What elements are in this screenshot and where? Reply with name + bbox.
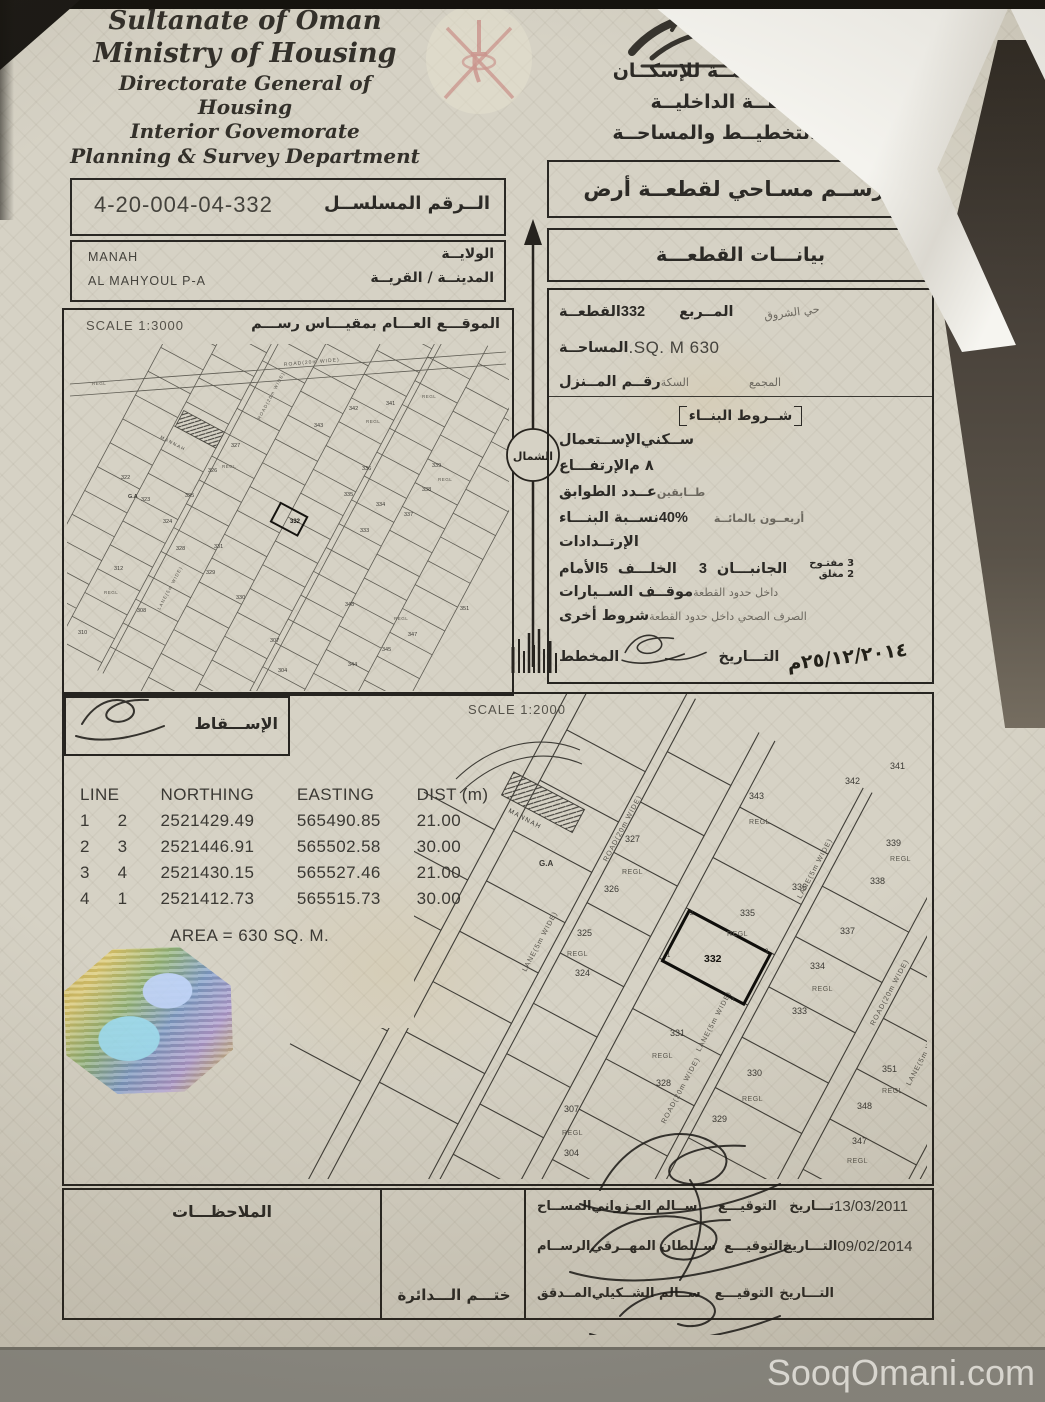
plot-number-label: 348 <box>345 602 354 608</box>
plot-number-label: REGL <box>92 381 106 386</box>
wilayat-value: MANAH <box>88 250 138 264</box>
plot-number-label: 347 <box>408 632 417 638</box>
plot-number-label: 337 <box>840 926 855 936</box>
plot-number-label: 325 <box>577 928 592 938</box>
plot-number-label: 324 <box>575 968 590 978</box>
coords-cell: 30.00 <box>417 886 490 912</box>
village-value: AL MAHYOUL P-A <box>88 274 206 288</box>
use-value: ســكني <box>641 432 694 448</box>
plot-number-label: 351 <box>882 1064 897 1074</box>
use-row: الإســتعمال ســكني <box>549 432 932 448</box>
front-label: الأمام <box>559 561 600 577</box>
plot-number-label: 323 <box>141 497 150 503</box>
planner-row: المخطط التـــاريخ ٢٥/١٢/٢٠١٤م <box>549 642 932 672</box>
photo-top-edge <box>0 0 1045 9</box>
coords-row: 122521429.49565490.8521.00 <box>80 808 490 834</box>
plot-data-header: بيانـــات القطعـــة <box>656 244 825 266</box>
setbacks-row: الإرتــدادات <box>549 534 932 550</box>
coords-cell: 565527.46 <box>297 860 417 886</box>
oman-emblem-icon <box>423 2 535 120</box>
coords-cell: 4 <box>80 886 118 912</box>
setbacks-label: الإرتــدادات <box>559 534 639 550</box>
coords-cell: 30.00 <box>417 834 490 860</box>
complex-label: المجمع <box>749 376 781 389</box>
plot-number-label: 307 <box>270 638 279 644</box>
coords-cell: 565490.85 <box>297 808 417 834</box>
coords-cell: 2521429.49 <box>161 808 297 834</box>
coords-cell: 1 <box>80 808 118 834</box>
plot-number-label: REGL <box>890 856 911 863</box>
sides-label: الجانبـــان <box>717 561 787 577</box>
street-label: LANE(5m WIDE) <box>906 1024 927 1087</box>
wilayat-box: الولايــة المدينــة / القريــة MANAH AL … <box>70 240 506 302</box>
watermark-text: SooqOmani.com <box>767 1352 1035 1394</box>
mannah-hatch-block <box>175 411 224 448</box>
header-line: Ministry of Housing <box>70 38 420 71</box>
plot-number-label: 324 <box>163 519 172 525</box>
area-row: المساحــة 630 SQ. M. <box>549 338 932 358</box>
plot-number-label: 328 <box>656 1078 671 1088</box>
plot-number-label: REGL <box>438 477 452 482</box>
column-divider <box>380 1190 382 1318</box>
coords-header: EASTING <box>297 782 417 808</box>
projection-label: الإســـقاط <box>194 714 278 733</box>
coords-header: NORTHING <box>161 782 297 808</box>
height-value: ٨ م <box>629 458 654 474</box>
district-name: حي الشروق <box>763 302 820 322</box>
plot-number-label: 339 <box>432 463 441 469</box>
building-conditions-header: شــروط البنــاء <box>683 408 799 424</box>
plot-number-label: REGL <box>422 394 436 399</box>
plot-number-label: 334 <box>376 502 385 508</box>
coords-cell: 2521446.91 <box>161 834 297 860</box>
plot-number-label: 335 <box>344 492 353 498</box>
coords-header: DIST (m) <box>417 782 490 808</box>
plot-number-label: 335 <box>740 908 755 918</box>
plot-number-label: REGL <box>622 869 643 876</box>
coords-cell: 3 <box>80 860 118 886</box>
plot-number-label: G.A <box>539 859 553 868</box>
plot-number-label: 310 <box>78 630 87 636</box>
coords-cell: 2521412.73 <box>161 886 297 912</box>
coords-cell: 2521430.15 <box>161 860 297 886</box>
coords-cell: 21.00 <box>417 860 490 886</box>
plot-number-label: REGL <box>749 819 770 826</box>
photo-bottom-strip: SooqOmani.com <box>0 1347 1045 1402</box>
plot-label: القطعــة <box>559 304 621 320</box>
parking-label: موقــف الســيارات <box>559 584 693 600</box>
back-label: الخلـــف <box>618 561 677 577</box>
plot-number-label: 351 <box>460 606 469 612</box>
setback-values-row: الأمام 5 الخلـــف 3 الجانبـــان 3 مفتـوح… <box>549 558 932 580</box>
plot-details-panel: القطعــة 332 المــربع حي الشروق المساحــ… <box>547 288 934 684</box>
plot-number-label: 336 <box>362 466 371 472</box>
area-value: 630 SQ. M. <box>629 338 720 358</box>
plot-number-label: 339 <box>886 838 901 848</box>
coords-cell: 3 <box>118 834 161 860</box>
coords-cell: 565502.58 <box>297 834 417 860</box>
coords-row: 342521430.15565527.4621.00 <box>80 860 490 886</box>
divider <box>549 396 932 397</box>
house-number-label: رقــم المــنزل <box>559 374 661 390</box>
coords-cell: 565515.73 <box>297 886 417 912</box>
other-conditions-row: شروط أخرى الصرف الصحي داخل حدود القطعة <box>549 608 932 624</box>
plot-number-label: 327 <box>625 834 640 844</box>
sides-open-value: 3 مفتـوح <box>809 558 854 569</box>
coords-cell: 2 <box>118 808 161 834</box>
plot-number-label: 308 <box>137 608 146 614</box>
parking-value: داخل حدود القطعة <box>693 586 778 599</box>
plot-number-label: 338 <box>870 876 885 886</box>
building-ratio-value: 40% <box>659 510 688 526</box>
plot-number-label: 331 <box>214 544 223 550</box>
notes-label: الملاحظـــات <box>64 1202 380 1221</box>
street-label: LANE(5m WIDE) <box>797 837 835 900</box>
use-label: الإســتعمال <box>559 432 641 448</box>
plot-number-label: 341 <box>386 401 395 407</box>
plot-number: 332 <box>621 304 645 320</box>
projection-box: الإســـقاط <box>64 696 290 756</box>
planner-signature-icon <box>619 622 712 672</box>
ratio-row: نســبة البنـــاء 40% أربعــون بالمائــة <box>549 510 932 526</box>
plot-number-label: 326 <box>604 884 619 894</box>
plot-number-label: 330 <box>236 595 245 601</box>
planner-date-value: ٢٥/١٢/٢٠١٤م <box>787 639 909 676</box>
street-label: LANE(5m WIDE) <box>156 565 183 610</box>
plot-number-label: 329 <box>206 570 215 576</box>
plot-number-label: REGL <box>812 986 833 993</box>
plot-number-label: 338 <box>422 487 431 493</box>
plot-number-label: 328 <box>176 546 185 552</box>
front-value: 5 <box>600 561 608 577</box>
photo-left-shadow <box>0 0 14 220</box>
coords-cell: 4 <box>118 860 161 886</box>
other-conditions-value: الصرف الصحي داخل حدود القطعة <box>649 610 807 623</box>
plot-data-header-box: بيانـــات القطعـــة <box>547 228 934 282</box>
header-line: Sultanate of Oman <box>70 6 420 38</box>
plot-number-row: القطعــة 332 المــربع حي الشروق <box>549 304 932 320</box>
building-conditions-header-row: شــروط البنــاء <box>549 408 932 424</box>
plot-number-label: 342 <box>349 406 358 412</box>
street-label: LANE(5m WIDE) <box>522 910 560 973</box>
english-header: Sultanate of Oman Ministry of Housing Di… <box>70 6 420 168</box>
plot-number-label: 341 <box>890 761 905 771</box>
detail-map-panel: SCALE 1:2000 343342341REGL336339REGL3383… <box>62 692 934 1186</box>
plot-number-label: 327 <box>231 443 240 449</box>
height-label: الإرتفـــاع <box>559 458 629 474</box>
planner-date-label: التـــاريخ <box>719 649 780 665</box>
height-row: الإرتفـــاع ٨ م <box>549 458 932 474</box>
plot-number-label: 348 <box>857 1101 872 1111</box>
header-line: Planning & Survey Department <box>70 144 420 168</box>
floors-label: عــدد الطوابق <box>559 484 657 500</box>
plot-number-label: 312 <box>114 566 123 572</box>
plot-number-label: 333 <box>792 1006 807 1016</box>
plot-number-label: REGL <box>727 931 748 938</box>
square-label: المــربع <box>679 304 733 320</box>
mannah-hatch-block <box>502 772 585 833</box>
plot-number-label: REGL <box>882 1088 903 1095</box>
coords-cell: 21.00 <box>417 808 490 834</box>
area-label: المساحــة <box>559 340 629 356</box>
serial-label: الــرقم المسلســل <box>324 193 490 214</box>
building-ratio-text: أربعــون بالمائــة <box>714 512 804 525</box>
floors-value: طــابقين <box>657 486 705 499</box>
plot-number-label: 322 <box>121 475 130 481</box>
plot-number-label: 325 <box>185 493 194 499</box>
stamp-label: ختـــم الـــدائرة <box>394 1286 514 1304</box>
serial-value: 4-20-004-04-332 <box>94 192 273 218</box>
plot-number-label: 330 <box>747 1068 762 1078</box>
plot-number-label: 337 <box>404 512 413 518</box>
plot-number-label: 342 <box>845 776 860 786</box>
plot-number-label: 333 <box>360 528 369 534</box>
plot-number-label: 345 <box>382 647 391 653</box>
coords-cell: 2 <box>80 834 118 860</box>
street-label: السكة <box>661 376 689 389</box>
serial-number-box: الــرقم المسلســل 4-20-004-04-332 <box>70 178 506 236</box>
street-label: ROAD(20m WIDE) <box>256 371 285 420</box>
plot-number-label: G.A <box>128 494 138 500</box>
plot-number-label: 334 <box>810 961 825 971</box>
plot-number-label: 307 <box>564 1104 579 1114</box>
coordinates-table: LINENORTHINGEASTINGDIST (m)122521429.495… <box>80 782 490 912</box>
footer-signatures-icon <box>540 1120 870 1335</box>
house-row: رقــم المــنزل السكة المجمع <box>549 374 932 390</box>
header-line: Directorate General of Housing <box>70 71 420 120</box>
plot-number-label: 332 <box>704 953 722 965</box>
sides-closed-value: 2 مغلق <box>809 569 854 580</box>
building-ratio-label: نســبة البنـــاء <box>559 510 659 526</box>
overview-map-panel: SCALE 1:3000 الموقـــع العـــام بمقيـــا… <box>62 308 514 696</box>
plot-number-label: 331 <box>670 1028 685 1038</box>
plot-number-label: REGL <box>567 951 588 958</box>
plot-number-label: REGL <box>366 419 380 424</box>
plot-number-label: REGL <box>394 616 408 621</box>
projection-signature-icon <box>72 684 202 748</box>
plot-number-label: 343 <box>749 791 764 801</box>
back-value: 3 <box>699 561 707 577</box>
plot-number-label: 343 <box>314 423 323 429</box>
document-photo: Sultanate of Oman Ministry of Housing Di… <box>0 0 1045 1402</box>
plot-number-label: 344 <box>348 662 357 668</box>
street-label: ROAD(20m WIDE) <box>603 794 644 863</box>
area-note: AREA = 630 SQ. M. <box>170 926 329 946</box>
parking-row: موقــف الســيارات داخل حدود القطعة <box>549 584 932 600</box>
planner-label: المخطط <box>559 649 619 665</box>
wilayat-label: الولايــة <box>441 246 494 262</box>
coords-header: LINE <box>80 782 161 808</box>
plot-number-label: 332 <box>290 519 301 525</box>
plot-number-label: 1 <box>667 953 671 959</box>
coords-row: 412521412.73565515.7330.00 <box>80 886 490 912</box>
header-line: Interior Govemorate <box>70 119 420 143</box>
column-divider <box>524 1190 526 1318</box>
coords-row: 232521446.91565502.5830.00 <box>80 834 490 860</box>
city-village-label: المدينــة / القريــة <box>370 270 494 286</box>
plot-number-label: 304 <box>278 668 287 674</box>
plot-number-label: REGL <box>222 464 236 469</box>
plot-number-label: REGL <box>742 1096 763 1103</box>
plot-number-label: REGL <box>104 590 118 595</box>
document-title: رســم مسـاحي لقطعــة أرض <box>583 177 884 201</box>
floors-row: عــدد الطوابق طــابقين <box>549 484 932 500</box>
plot-number-label: REGL <box>652 1053 673 1060</box>
plot-number-label: MANNAH <box>160 434 187 452</box>
plot-number-label: 326 <box>208 468 217 474</box>
overview-map: REGL343342341REGL336335334333337338339RE… <box>64 310 512 694</box>
coords-cell: 1 <box>118 886 161 912</box>
